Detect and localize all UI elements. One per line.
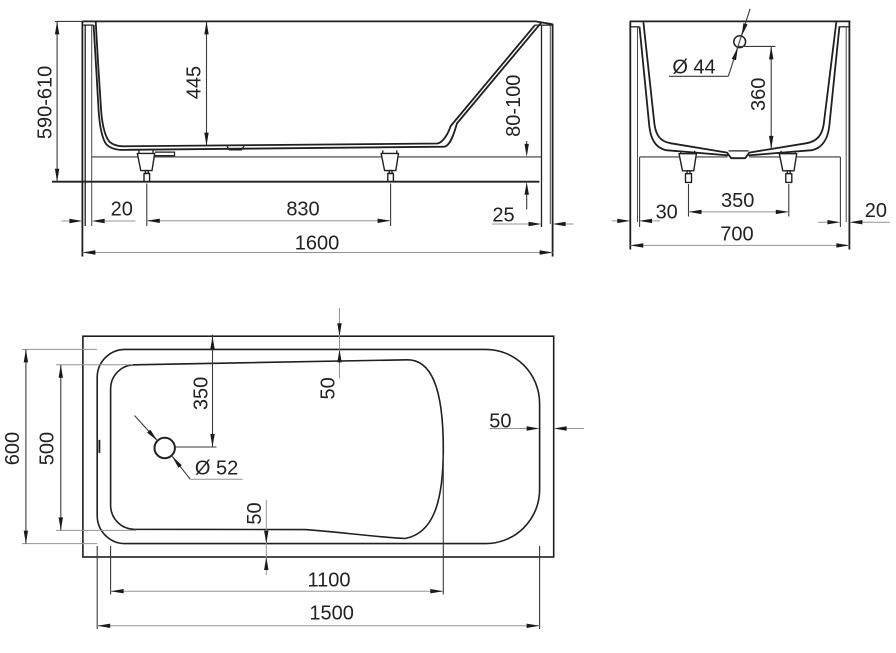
svg-text:1500: 1500: [309, 603, 354, 625]
svg-text:360: 360: [748, 78, 770, 111]
svg-text:Ø 52: Ø 52: [195, 458, 238, 480]
svg-text:500: 500: [36, 432, 58, 465]
svg-text:Ø 44: Ø 44: [672, 56, 715, 78]
svg-text:20: 20: [111, 199, 133, 221]
svg-text:700: 700: [720, 224, 753, 246]
svg-text:30: 30: [656, 201, 678, 223]
svg-text:50: 50: [317, 377, 339, 399]
svg-text:50: 50: [489, 411, 511, 433]
svg-text:445: 445: [184, 66, 206, 99]
svg-text:1600: 1600: [295, 232, 340, 254]
svg-text:600: 600: [2, 432, 24, 465]
svg-text:1100: 1100: [307, 569, 350, 591]
svg-text:25: 25: [492, 205, 514, 227]
svg-text:350: 350: [190, 377, 212, 410]
svg-text:830: 830: [286, 198, 319, 220]
svg-text:590-610: 590-610: [35, 66, 57, 139]
svg-text:50: 50: [244, 502, 266, 524]
svg-text:80-100: 80-100: [503, 75, 525, 137]
svg-text:350: 350: [721, 190, 754, 212]
svg-text:20: 20: [865, 200, 887, 222]
